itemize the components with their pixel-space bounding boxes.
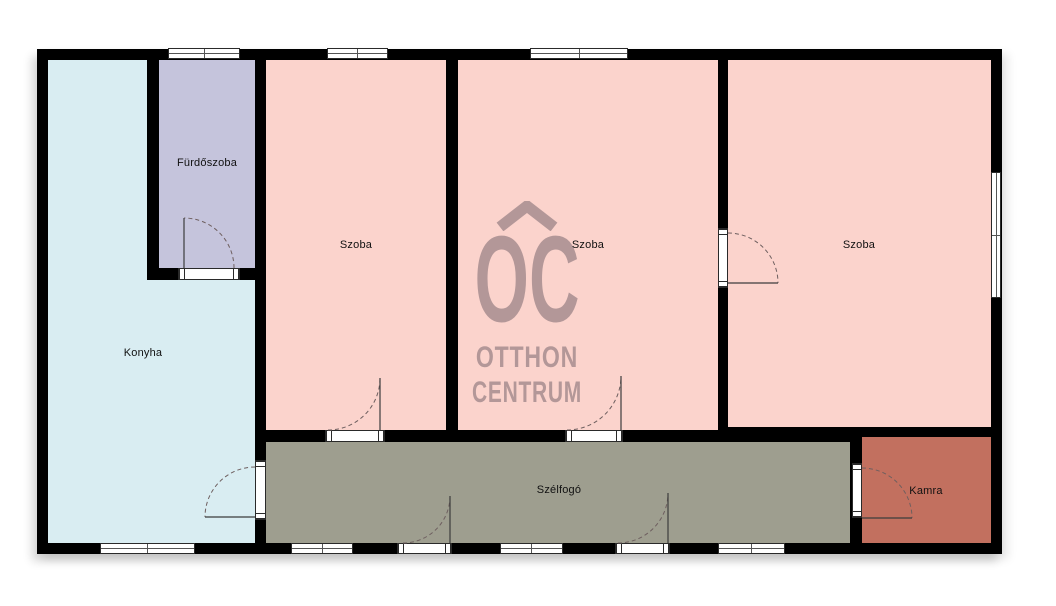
room-label-furdoszoba: Fürdőszoba [177,157,237,169]
door-threshold-szoba-1 [325,430,385,442]
window-bottom-szelfogo-2 [500,543,563,554]
room-label-szoba-2: Szoba [572,239,604,251]
window-top-szoba-1 [327,48,388,59]
window-bottom-szelfogo-3 [718,543,785,554]
window-bottom-szelfogo-1 [291,543,353,554]
floorplan: OC OTTHON CENTRUM Fürdőszoba Konyha Szob… [0,0,1056,606]
door-threshold-szoba-3 [718,228,728,288]
room-label-kamra: Kamra [909,485,942,497]
door-threshold-konyha [255,460,266,520]
window-top-szoba-2 [530,48,628,59]
door-threshold-szoba-2 [565,430,623,442]
door-threshold-exit-1 [397,543,452,554]
window-bottom-konyha [100,543,195,554]
room-konyha-upper [48,60,147,543]
window-top-furdoszoba [168,48,240,59]
room-label-szoba-1: Szoba [340,239,372,251]
room-konyha-lower [147,280,255,543]
room-label-szelfogo: Szélfogó [537,484,581,496]
window-right-szoba-3 [991,172,1001,298]
door-threshold-furdoszoba [178,268,240,280]
room-label-szoba-3: Szoba [843,239,875,251]
door-threshold-exit-2 [615,543,670,554]
room-label-konyha: Konyha [124,347,163,359]
door-threshold-kamra [852,463,862,518]
